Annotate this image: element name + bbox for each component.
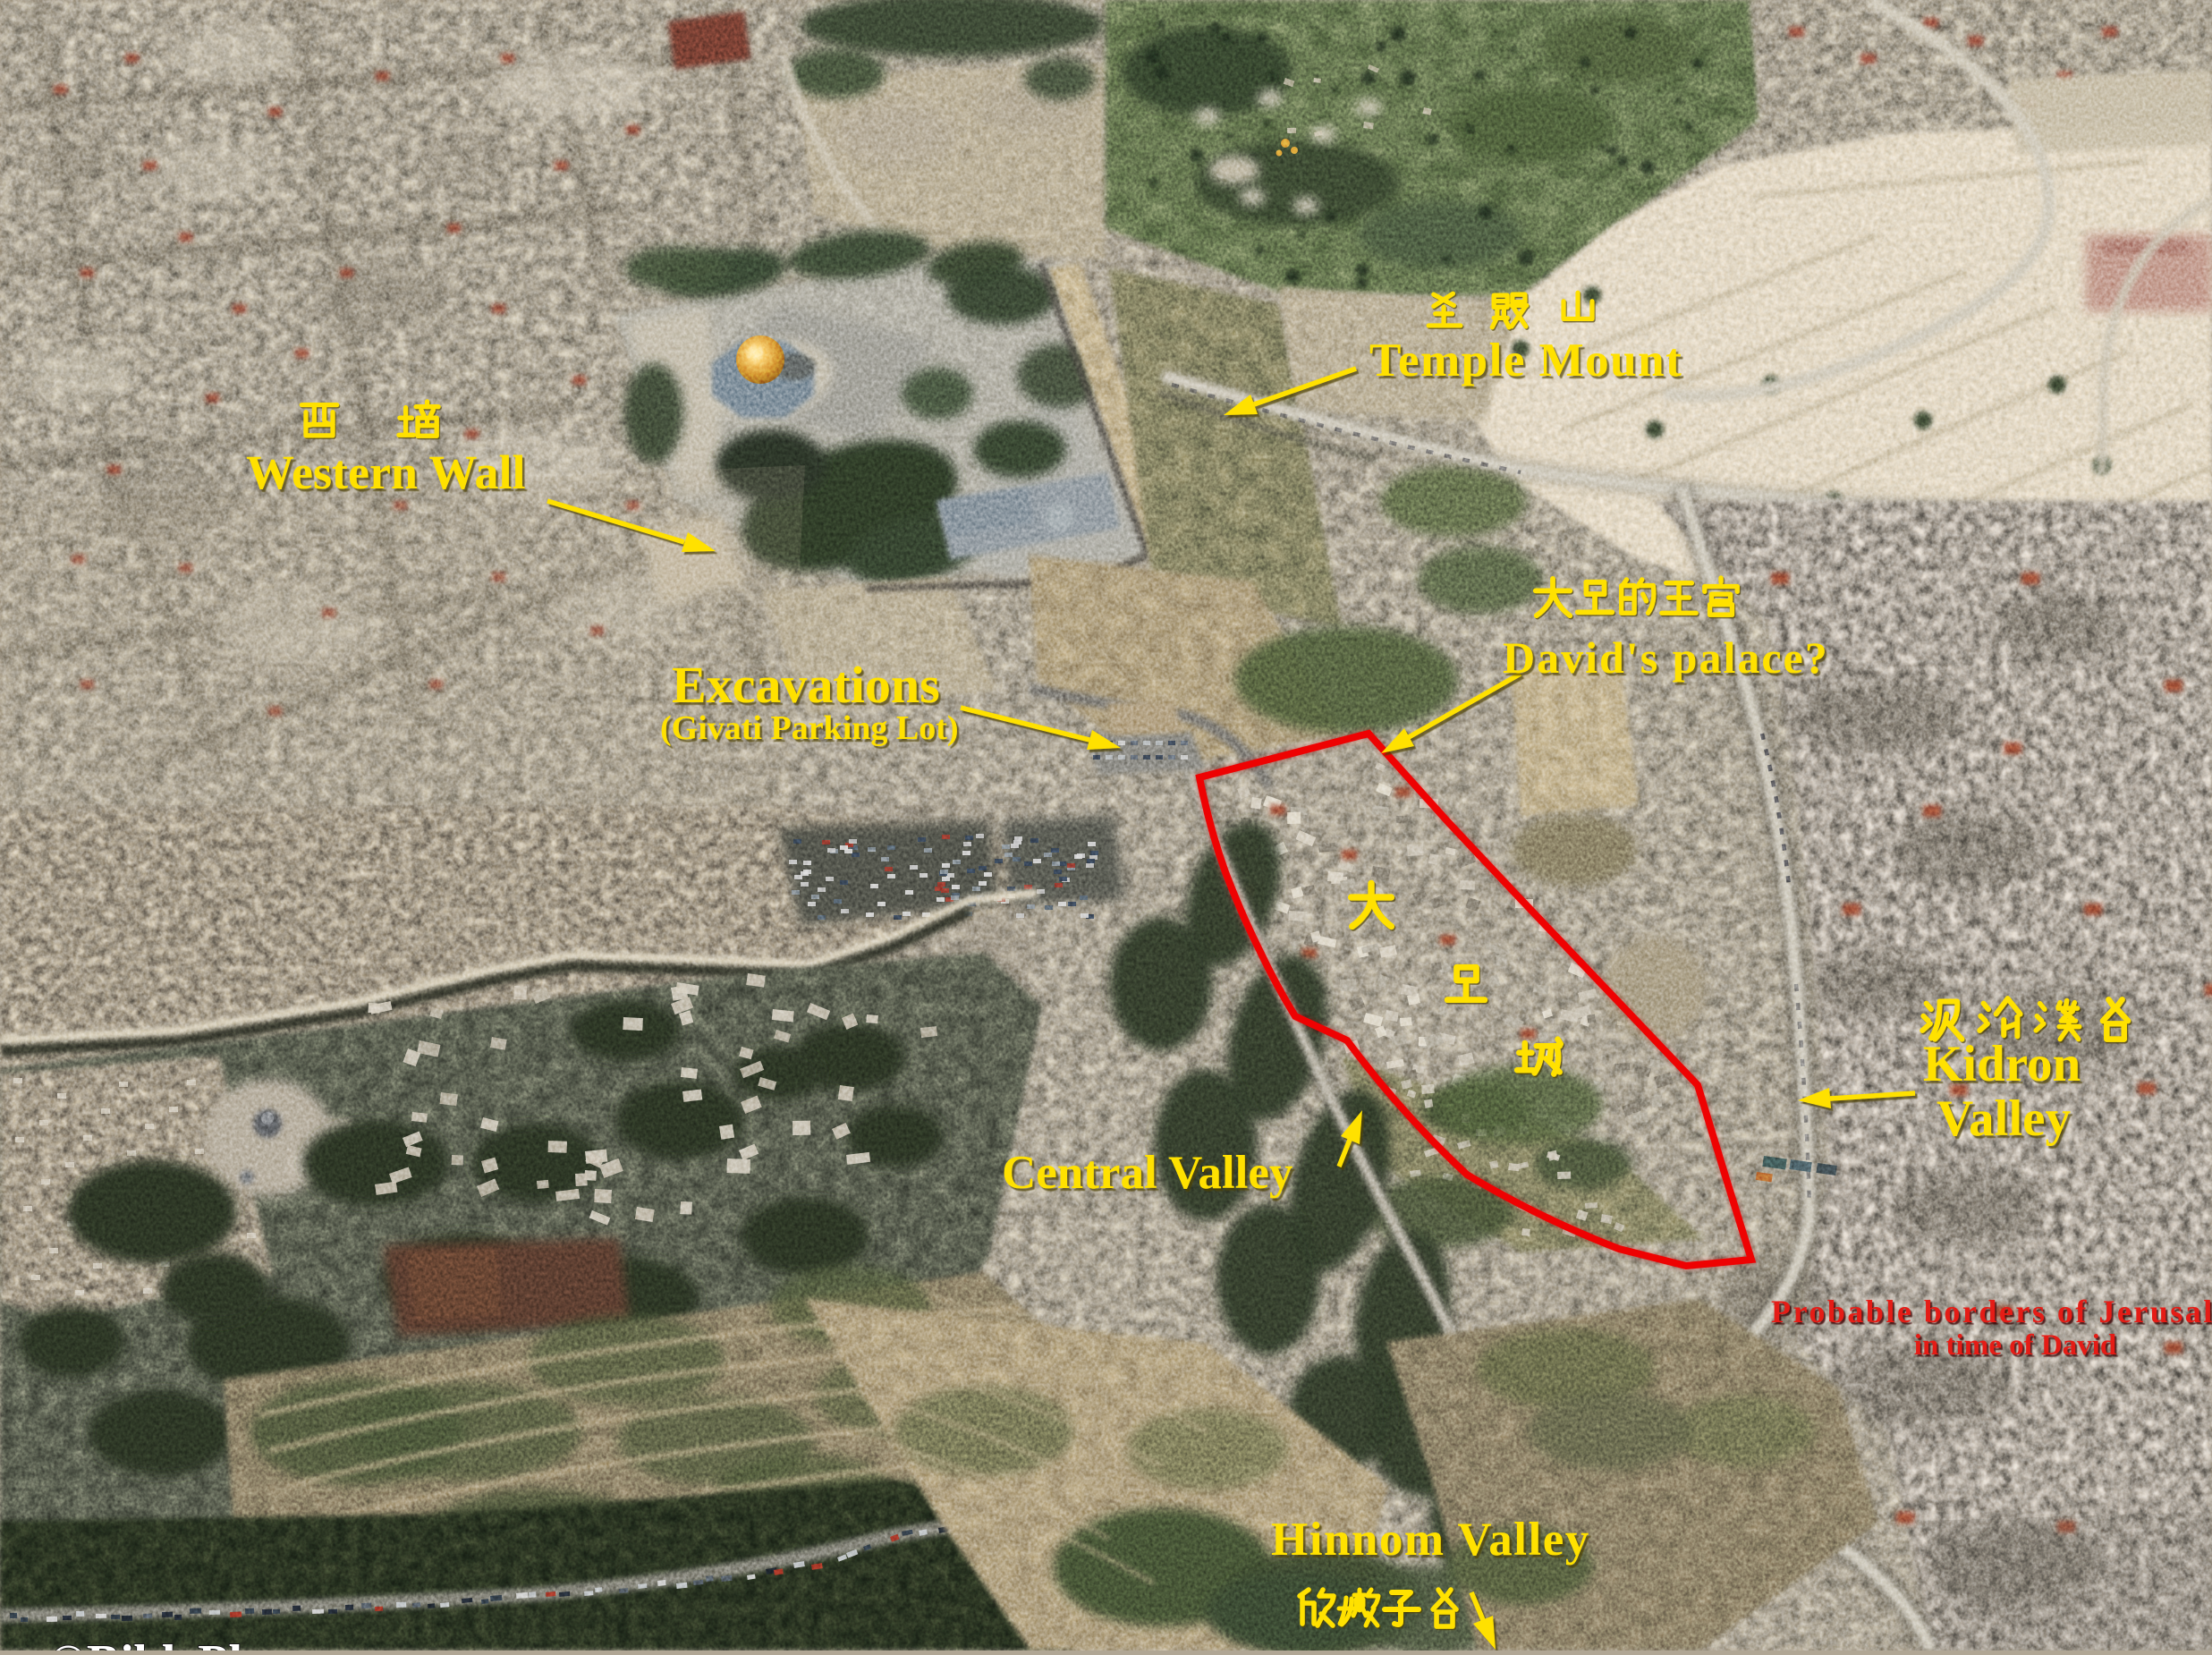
svg-text:(Givati Parking Lot): (Givati Parking Lot) xyxy=(660,709,959,747)
svg-text:Valley: Valley xyxy=(1937,1091,2071,1147)
svg-text:Temple Mount: Temple Mount xyxy=(1369,335,1682,386)
svg-text:in time of David: in time of David xyxy=(1914,1329,2116,1362)
svg-text:Central Valley: Central Valley xyxy=(1002,1147,1292,1199)
svg-text:©BiblePlaces.com: ©BiblePlaces.com xyxy=(49,1635,433,1651)
svg-text:Hinnom Valley: Hinnom Valley xyxy=(1271,1514,1590,1566)
svg-text:David's palace?: David's palace? xyxy=(1503,632,1829,683)
svg-text:Excavations: Excavations xyxy=(672,656,940,714)
svg-text:Kidron: Kidron xyxy=(1923,1036,2081,1092)
svg-text:Probable borders of Jerusalem: Probable borders of Jerusalem xyxy=(1771,1294,2212,1329)
svg-text:Western Wall: Western Wall xyxy=(246,446,526,499)
